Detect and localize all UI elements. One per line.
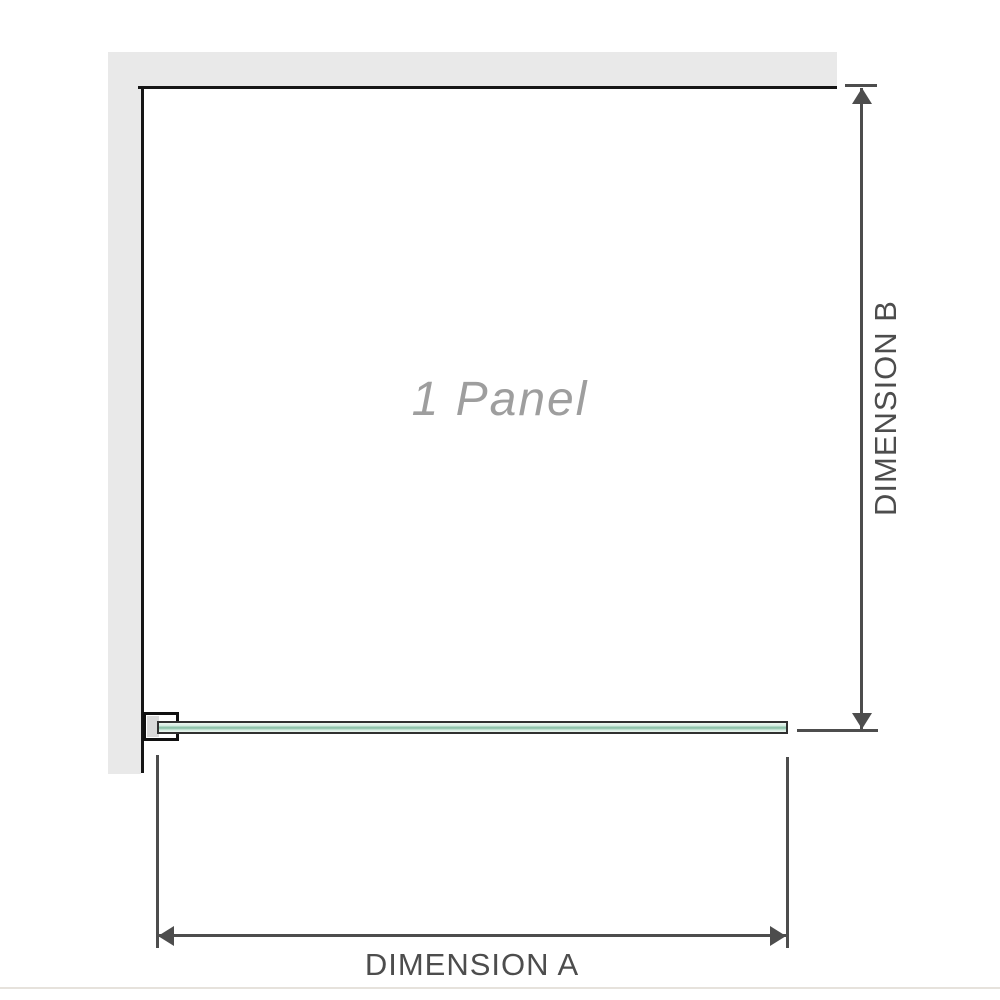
dimension-b-arrow-up-icon xyxy=(852,88,872,104)
top-wall xyxy=(108,52,837,86)
image-bottom-divider xyxy=(0,987,1000,989)
dimension-b-top-tick xyxy=(845,84,877,87)
left-wall xyxy=(108,52,141,774)
dimension-a-arrow-right-icon xyxy=(770,926,786,946)
left-wall-inner-edge xyxy=(141,86,144,773)
dimension-a-arrow-left-icon xyxy=(158,926,174,946)
dimension-b-bottom-tick xyxy=(797,729,878,732)
dimension-a-left-extension xyxy=(156,755,159,948)
top-wall-inner-edge xyxy=(138,86,837,89)
dimension-a-line xyxy=(158,934,786,937)
dimension-a-right-extension xyxy=(786,757,789,948)
glass-panel xyxy=(157,721,788,734)
dimension-a-label: DIMENSION A xyxy=(158,947,786,983)
dimension-b-line xyxy=(860,88,863,730)
dimension-b-label: DIMENSION B xyxy=(868,300,904,516)
panel-count-label: 1 Panel xyxy=(300,372,700,427)
dimension-b-arrow-down-icon xyxy=(852,713,872,729)
panel-dimension-diagram: 1 Panel DIMENSION B DIMENSION A xyxy=(0,0,1000,1000)
